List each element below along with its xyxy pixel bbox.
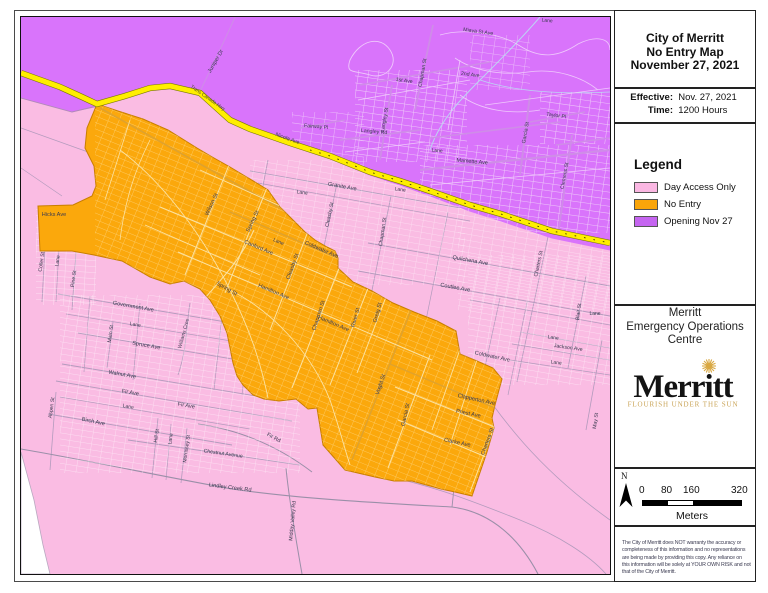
svg-text:Lane: Lane (431, 148, 443, 155)
svg-text:Lane: Lane (541, 18, 553, 25)
svg-text:Hicks Ave: Hicks Ave (42, 212, 66, 218)
svg-text:Lane: Lane (589, 311, 600, 317)
svg-text:FLOURISH UNDER THE SUN: FLOURISH UNDER THE SUN (628, 401, 739, 409)
